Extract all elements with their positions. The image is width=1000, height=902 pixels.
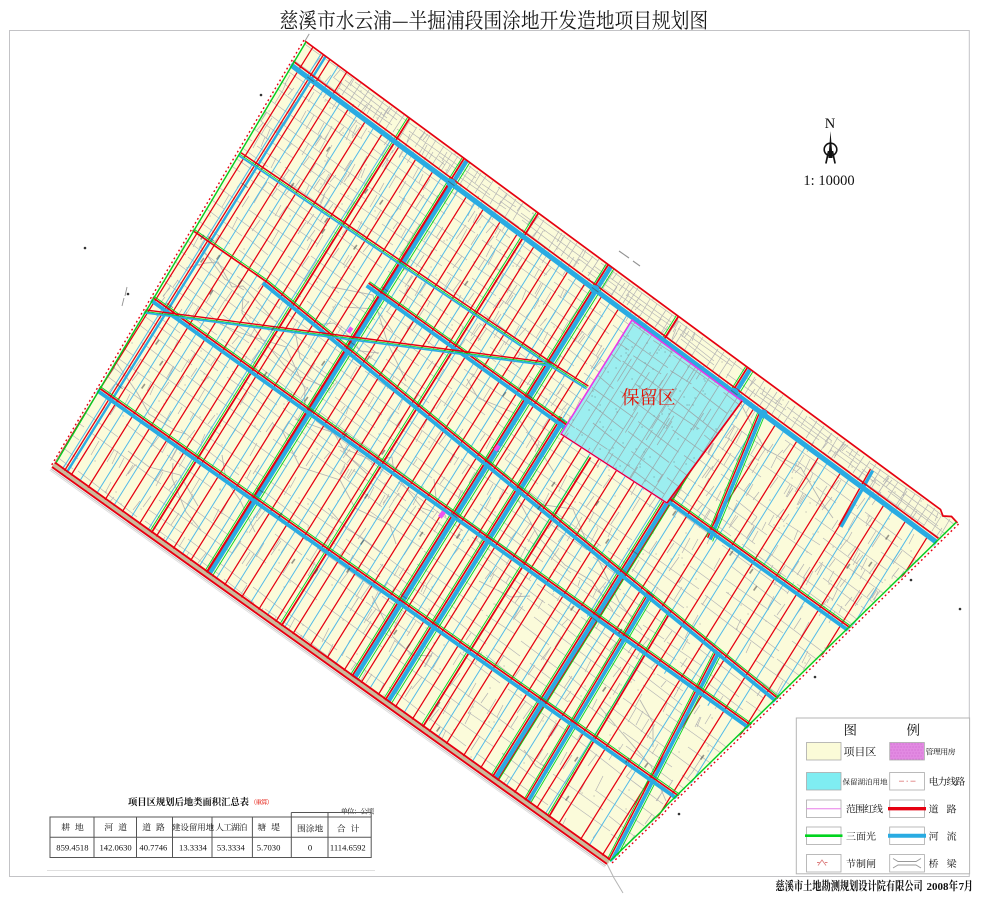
svg-text:40.7746: 40.7746: [139, 843, 168, 853]
svg-text:5.7030: 5.7030: [257, 843, 281, 853]
svg-text:1114.6592: 1114.6592: [330, 843, 366, 853]
svg-text:1: 10000: 1: 10000: [803, 173, 854, 189]
svg-text:2008: 2008: [927, 881, 950, 893]
svg-text:0: 0: [308, 843, 312, 853]
svg-text:13.3334: 13.3334: [179, 843, 208, 853]
svg-text:142.0630: 142.0630: [99, 843, 131, 853]
svg-text:N: N: [825, 116, 836, 132]
svg-text:7: 7: [959, 881, 965, 893]
svg-text:53.3334: 53.3334: [217, 843, 246, 853]
svg-text:859.4518: 859.4518: [56, 843, 88, 853]
